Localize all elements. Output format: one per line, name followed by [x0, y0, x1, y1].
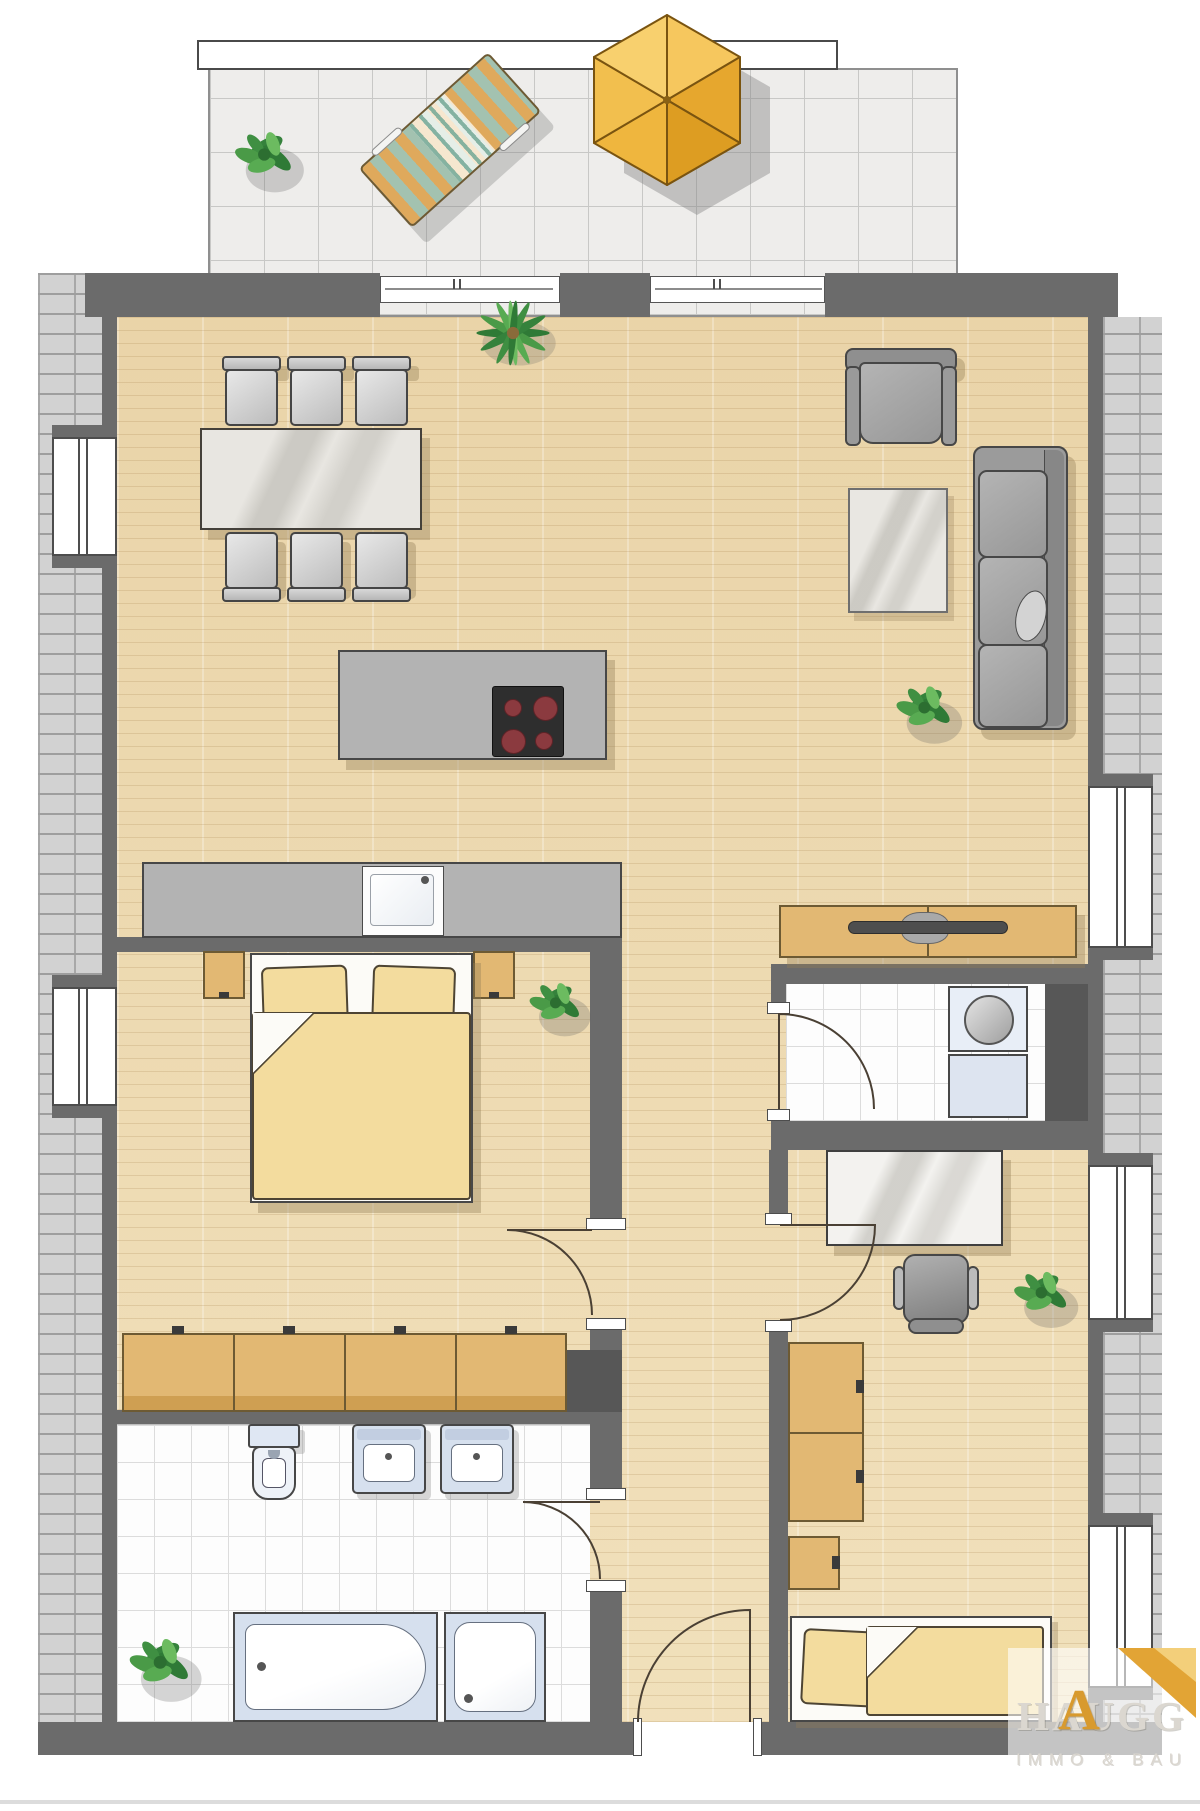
shower [444, 1612, 546, 1722]
toilet-icon [252, 1446, 296, 1500]
washbasin [352, 1424, 426, 1494]
wardrobe-handle [505, 1326, 517, 1334]
potted-plant-icon [116, 1620, 208, 1712]
sofa [973, 446, 1068, 730]
armchair-seat [859, 362, 943, 444]
rug [848, 488, 948, 613]
faucet-icon [421, 876, 429, 884]
wardrobe [122, 1333, 567, 1412]
top-wall-segment [825, 273, 1118, 317]
palm-plant-icon [452, 272, 574, 394]
dining-chair [352, 587, 411, 602]
wardrobe-handle [856, 1380, 864, 1393]
bedroom-bathroom-wall [117, 1410, 622, 1424]
brand-accent-letter: A [1058, 1676, 1100, 1743]
dining-chair [222, 587, 281, 602]
window-jamb [1088, 774, 1153, 786]
shower-drain-icon [464, 1694, 473, 1703]
duvet-fold [867, 1627, 919, 1679]
office-wall [769, 1332, 788, 1722]
dining-chair-seat [290, 369, 343, 426]
sofa-cushion [978, 470, 1048, 558]
utility-wall-bottom [771, 1121, 1088, 1150]
window-jamb [1088, 948, 1153, 960]
toilet-tank [248, 1424, 300, 1448]
door-post [586, 1580, 626, 1592]
faucet-icon [257, 1662, 266, 1671]
brand-name: HAUGG [1008, 1692, 1196, 1740]
desk [826, 1150, 1003, 1246]
utility-wall-top [771, 964, 1088, 984]
cabinet-handle [832, 1556, 840, 1569]
wardrobe-tall [788, 1342, 864, 1522]
armchair-arm [941, 366, 957, 446]
entrance-door-post [633, 1718, 642, 1756]
window-jamb [52, 1106, 117, 1118]
door-post [586, 1218, 626, 1230]
floor-plan-page: HAUGG A IMMO & BAU [0, 0, 1200, 1811]
door-post [767, 1002, 790, 1014]
sun-umbrella-icon [560, 0, 800, 230]
page-footer-rule [0, 1800, 1200, 1804]
tv-icon [848, 921, 1008, 934]
wardrobe-handle [394, 1326, 406, 1334]
dining-chair-seat [225, 532, 278, 589]
duvet-fold [253, 1013, 315, 1075]
window-office-right [1088, 1165, 1153, 1320]
brand-watermark: HAUGG A IMMO & BAU [1008, 1648, 1196, 1790]
balcony-door [650, 276, 825, 303]
dining-chair-seat [355, 369, 408, 426]
washbasin [440, 1424, 514, 1494]
office-chair-back [908, 1318, 964, 1334]
office-chair [903, 1254, 969, 1324]
washer-drum-icon [964, 995, 1014, 1045]
window-living-left [52, 437, 117, 556]
potted-plant-icon [222, 112, 310, 204]
utility-floor-tiles [786, 984, 1088, 1121]
window-bedroom-left [52, 987, 117, 1106]
dining-chair-seat [290, 532, 343, 589]
kitchen-wall [117, 937, 622, 952]
window-jamb [1088, 1320, 1153, 1332]
brand-tagline: IMMO & BAU [1008, 1750, 1196, 1770]
potted-plant-icon [1002, 1252, 1084, 1340]
potted-plant-icon [884, 668, 968, 754]
dining-chair-seat [355, 532, 408, 589]
dryer [948, 1054, 1028, 1118]
bathtub [233, 1612, 438, 1722]
faucet-icon [473, 1453, 480, 1460]
door-post [586, 1488, 626, 1500]
door-post [586, 1318, 626, 1330]
window-jamb [1088, 1513, 1153, 1525]
window-jamb [1088, 1153, 1153, 1165]
entrance-door-post [753, 1718, 762, 1756]
nightstand-handle [489, 992, 499, 998]
nightstand-handle [219, 992, 229, 998]
dining-chair-seat [225, 369, 278, 426]
window-jamb [52, 425, 117, 437]
washing-machine [948, 986, 1028, 1052]
potted-plant-icon [518, 962, 596, 1050]
window-jamb [52, 975, 117, 987]
door-post [765, 1213, 792, 1225]
kitchen-island [338, 650, 607, 760]
kitchen-sink [362, 866, 444, 936]
hall-wall [590, 1592, 622, 1722]
installation-shaft [1045, 984, 1088, 1121]
top-wall-segment [85, 273, 380, 317]
window-jamb [52, 556, 117, 568]
door-post [765, 1320, 792, 1332]
window-living-right [1088, 786, 1153, 948]
dining-table [200, 428, 422, 530]
door-post [767, 1109, 790, 1121]
cooktop-icon [492, 686, 564, 757]
wardrobe-handle [283, 1326, 295, 1334]
faucet-icon [385, 1453, 392, 1460]
wardrobe-handle [172, 1326, 184, 1334]
dining-chair [287, 587, 346, 602]
bottom-wall-segment [38, 1722, 641, 1755]
duct-block [567, 1350, 622, 1412]
wardrobe-handle [856, 1470, 864, 1483]
duvet [252, 1012, 471, 1200]
sofa-cushion [978, 644, 1048, 728]
exterior-wall-right [1088, 317, 1103, 1722]
